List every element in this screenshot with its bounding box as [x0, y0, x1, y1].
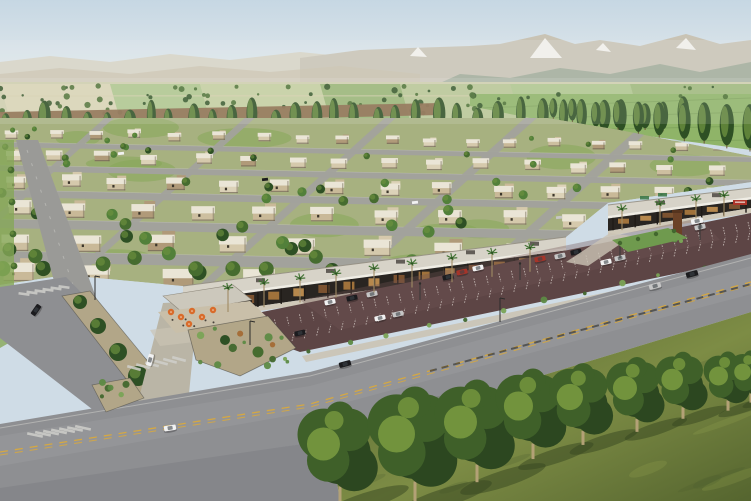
house	[473, 158, 490, 169]
house	[310, 207, 334, 222]
house	[94, 151, 111, 162]
house	[426, 158, 443, 170]
house	[503, 138, 517, 147]
atmospheric-haze	[0, 78, 751, 124]
house	[466, 139, 480, 148]
house	[219, 181, 239, 194]
house	[609, 162, 626, 173]
rendering-canvas	[0, 0, 751, 501]
house	[675, 143, 689, 152]
house	[331, 159, 348, 170]
aerial-site-rendering	[0, 0, 751, 501]
house	[629, 141, 643, 150]
house	[212, 130, 226, 139]
house	[140, 155, 157, 166]
house	[709, 165, 726, 176]
house	[381, 158, 398, 169]
house	[168, 132, 182, 141]
house	[258, 133, 272, 142]
house	[570, 162, 587, 174]
house	[335, 135, 349, 144]
house	[423, 138, 437, 147]
house	[296, 135, 310, 144]
house	[656, 165, 673, 176]
house	[89, 131, 103, 140]
house	[548, 137, 562, 146]
house	[290, 158, 307, 169]
house	[50, 130, 64, 139]
house	[592, 140, 606, 149]
house	[191, 206, 215, 221]
house	[562, 214, 586, 229]
house	[432, 182, 452, 195]
house	[386, 135, 400, 144]
house	[46, 150, 63, 161]
